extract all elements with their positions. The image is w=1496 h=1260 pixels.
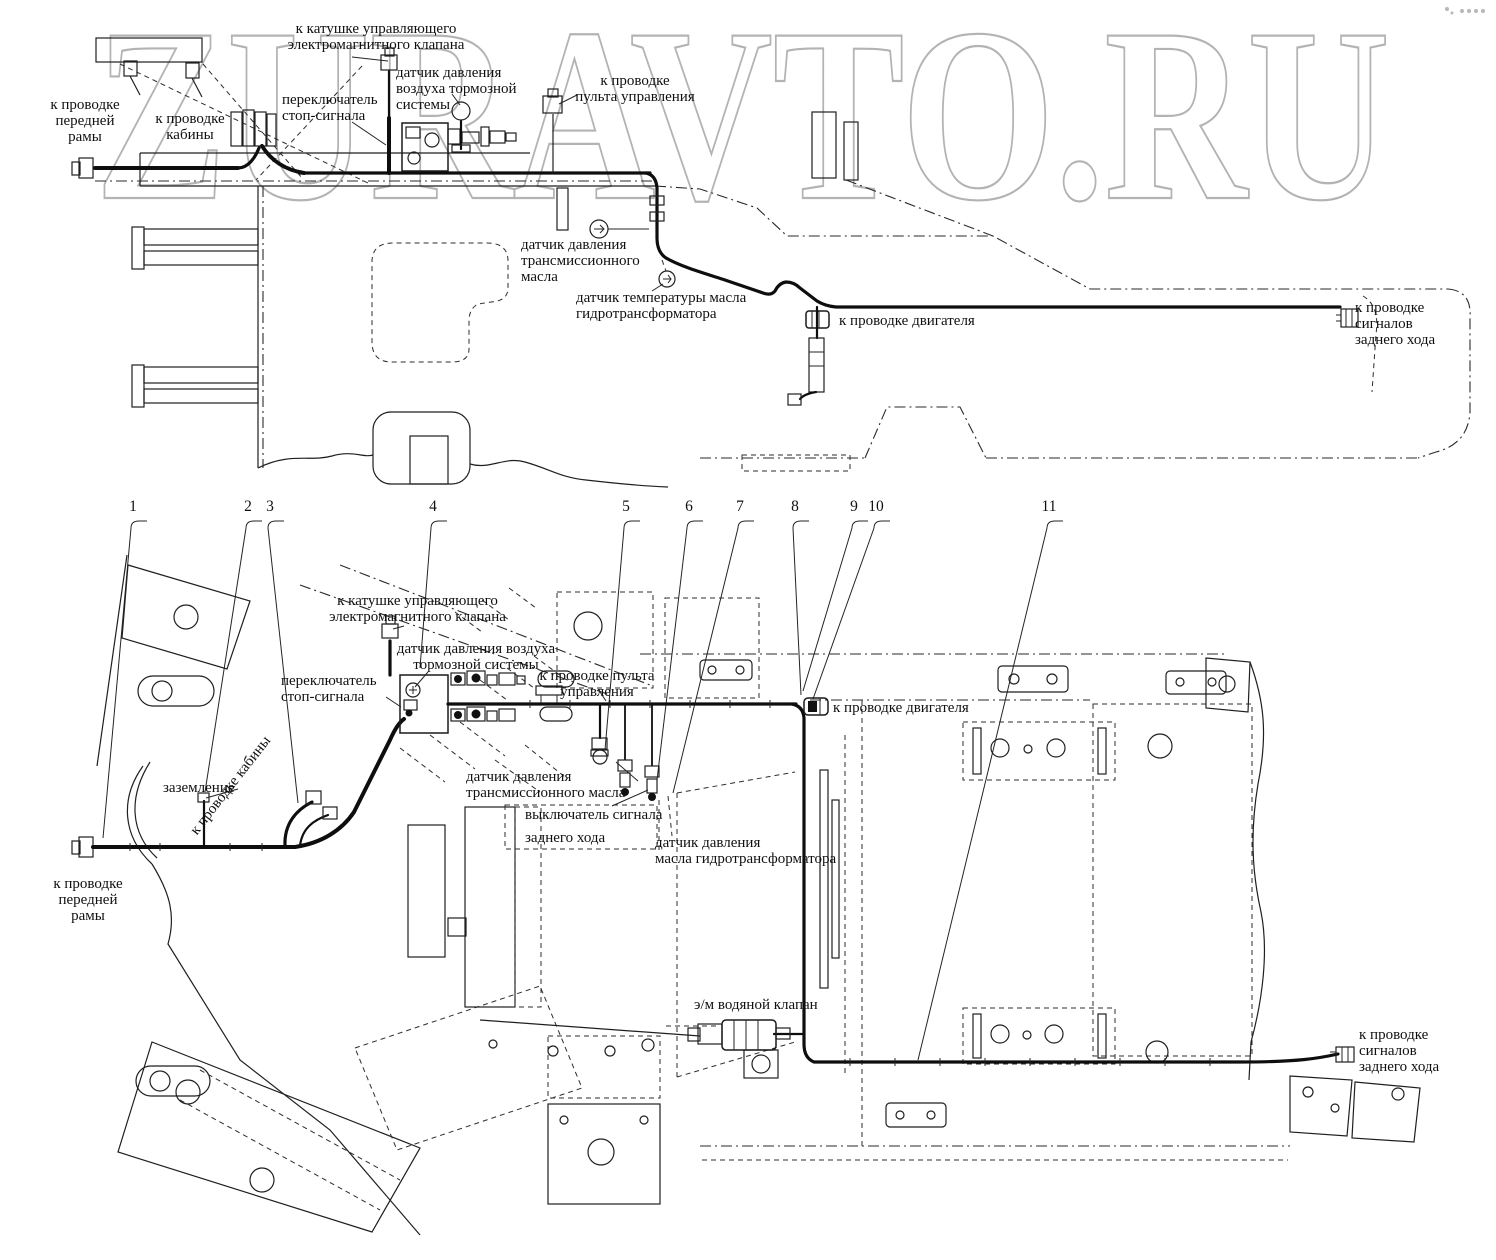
label-hydro-oil: датчик давления масла гидротрансформатор… (655, 835, 865, 867)
label-trans-oil-lower: датчик давления трансмиссионного масла (466, 769, 651, 801)
label-reverse-lower: к проводке сигналов заднего хода (1359, 1027, 1454, 1076)
callout-5: 5 (613, 498, 639, 516)
frame-opening (372, 243, 508, 362)
label-engine-lower: к проводке двигателя (833, 700, 969, 716)
label-engine-upper: к проводке двигателя (839, 313, 975, 329)
label-cab-upper: к проводке кабины (146, 111, 234, 143)
label-trans-oil-upper: датчик давления трансмиссионного масла (521, 237, 661, 286)
label-coil-lower: к катушке управляющего электромагнитного… (315, 593, 520, 625)
callout-8: 8 (782, 498, 808, 516)
label-stop-switch-upper: переключатель стоп-сигнала (282, 92, 392, 124)
wiring-diagram-canvas: ZURAVTO.RU (0, 0, 1496, 1260)
label-front-frame-upper: к проводке передней рамы (42, 97, 128, 146)
corner-specks-decoration (1445, 7, 1485, 15)
label-coil-upper: к катушке управляющего электромагнитного… (278, 21, 474, 53)
callout-4: 4 (420, 498, 446, 516)
label-oil-temp-upper: датчик температуры масла гидротрансформа… (576, 290, 786, 322)
front-frame-connector-lower (79, 837, 93, 857)
callout-10: 10 (863, 498, 889, 516)
label-reverse-upper: к проводке сигналов заднего хода (1355, 300, 1450, 349)
callout-3: 3 (257, 498, 283, 516)
callout-1: 1 (120, 498, 146, 516)
water-valve (722, 1020, 776, 1050)
callout-11: 11 (1036, 498, 1062, 516)
label-stop-switch-lower: переключатель стоп-сигнала (281, 673, 391, 705)
stop-signal-switch-lower (400, 675, 448, 733)
label-control-panel-upper: к проводке пульта управления (560, 73, 710, 105)
callout-6: 6 (676, 498, 702, 516)
front-frame-connector (79, 158, 93, 178)
diagram-line-art: ZURAVTO.RU (0, 0, 1496, 1260)
label-front-frame-lower: к проводке передней рамы (47, 876, 129, 925)
callout-7: 7 (727, 498, 753, 516)
label-air-sensor-upper: датчик давления воздуха тормозной систем… (396, 65, 536, 114)
lower-view-line-art (72, 555, 1420, 1235)
label-control-panel-lower: к проводке пульта управления (533, 668, 661, 700)
label-water-valve: э/м водяной клапан (694, 997, 818, 1013)
front-frame-plate (122, 565, 250, 669)
